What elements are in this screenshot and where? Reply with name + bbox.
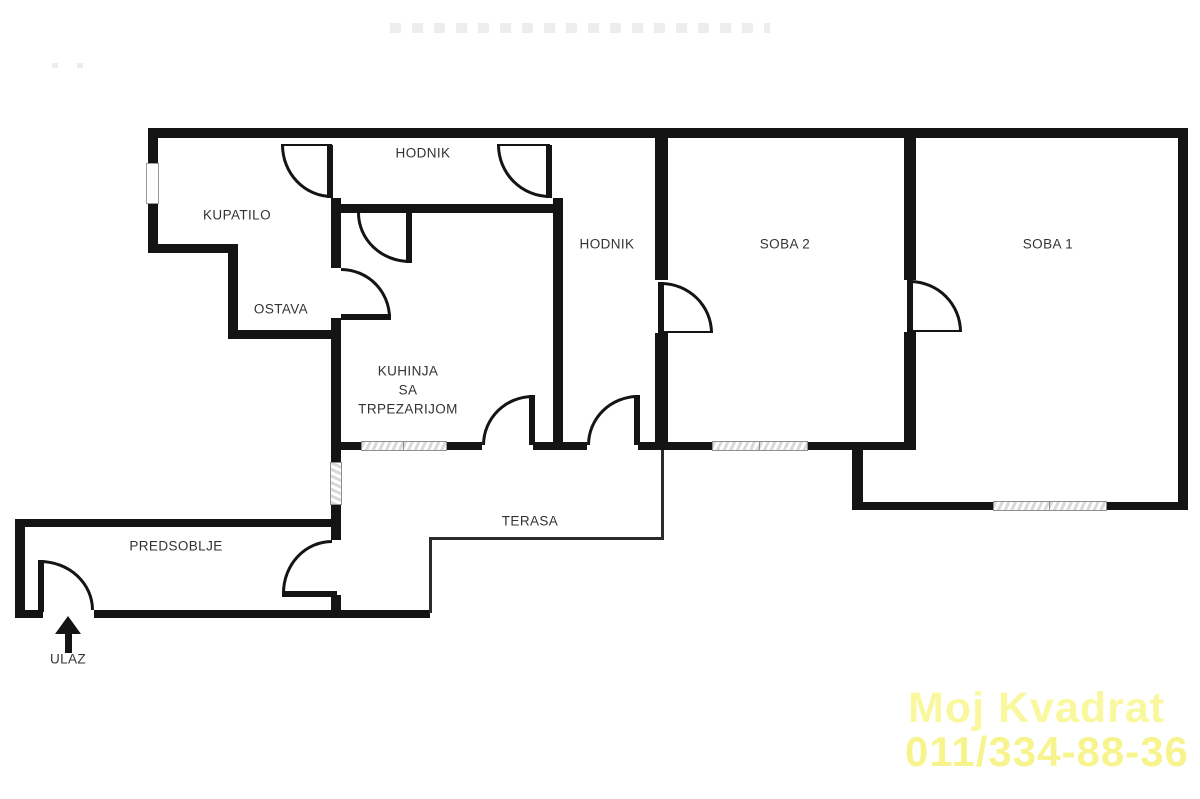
room-label-kuhinja-line1: KUHINJA <box>378 364 439 379</box>
door-leaf-soba1 <box>907 280 913 332</box>
wall-bottom-band-seg4 <box>638 442 712 450</box>
door-leaf-kuhinja-bottom <box>529 395 535 445</box>
wall-central-seg2 <box>331 318 341 462</box>
room-label-predsoblje: PREDSOBLJE <box>129 539 222 554</box>
room-label-hodnik: HODNIK <box>580 237 635 252</box>
door-edge-kupatilo <box>281 144 332 146</box>
room-label-soba1: SOBA 1 <box>1023 237 1073 252</box>
window-soba2-left <box>712 441 760 451</box>
room-label-kuhinja-line3: TRPEZARIJOM <box>358 402 458 417</box>
door-arc-soba2 <box>661 282 713 333</box>
watermark-brand: Moj Kvadrat <box>908 687 1165 730</box>
wall-kupatilo-left-upper <box>148 128 158 163</box>
window-kuhinja-right <box>403 441 447 451</box>
wall-soba2-soba1-upper <box>904 137 916 280</box>
door-leaf-predsoblje-right <box>282 591 337 597</box>
room-label-hodnik-upper: HODNIK <box>396 146 451 161</box>
window-soba1-right <box>1049 501 1107 511</box>
wall-kuhinja-hodnik-divider <box>553 198 563 450</box>
entrance-label: ULAZ <box>50 652 86 667</box>
window-terasa <box>330 462 342 505</box>
door-leaf-hodnik-bottom <box>634 395 640 445</box>
speck <box>52 63 58 68</box>
door-arc-kupatilo <box>281 145 332 198</box>
door-leaf-kupatilo <box>327 145 333 198</box>
door-arc-ostava <box>341 268 391 318</box>
door-leaf-soba2 <box>658 282 664 333</box>
wall-kupatilo-bottom <box>148 244 238 253</box>
speck <box>77 63 83 68</box>
room-label-kuhinja-line2: SA <box>399 383 418 398</box>
door-arc-predsoblje-right <box>282 540 332 593</box>
door-arc-hodnik-upper <box>497 145 550 198</box>
room-label-terasa: TERASA <box>502 514 558 529</box>
door-arc-entrance <box>40 560 94 610</box>
entrance-arrow-shaft <box>65 632 72 653</box>
window-soba1-left <box>993 501 1050 511</box>
door-edge-soba2 <box>661 331 713 333</box>
terasa-outline-left-step <box>429 537 432 613</box>
terasa-outline-bottom <box>429 537 664 540</box>
door-arc-hodnik-bottom <box>587 395 638 445</box>
door-edge-soba1 <box>910 330 962 332</box>
wall-predsoblje-top <box>15 519 341 527</box>
wall-bottom-band-seg1 <box>331 442 361 450</box>
door-leaf-hodnik-upper <box>546 145 552 198</box>
door-arc-kuhinja-top <box>357 213 410 263</box>
door-leaf-ostava <box>341 314 391 320</box>
window-kupatilo <box>146 163 159 204</box>
wall-hodnik-soba2-upper <box>655 137 668 280</box>
dashed-top-line <box>390 23 770 33</box>
wall-ostava-bottom <box>228 330 341 339</box>
wall-hodnik-soba2-lower <box>655 333 668 450</box>
room-label-kuhinja: KUHINJA SA TRPEZARIJOM <box>358 362 458 419</box>
wall-bottom-band-seg3 <box>533 442 587 450</box>
window-soba2-right <box>759 441 808 451</box>
wall-predsoblje-bottom-right <box>94 610 430 618</box>
terasa-outline-right <box>661 450 664 539</box>
wall-right-outer <box>1178 128 1188 510</box>
wall-predsoblje-left <box>15 519 25 618</box>
floor-plan: KUPATILO HODNIK OSTAVA KUHINJA SA TRPEZA… <box>0 0 1200 799</box>
wall-bottom-band-seg2 <box>447 442 482 450</box>
door-leaf-kuhinja-top <box>406 213 412 263</box>
room-label-soba2: SOBA 2 <box>760 237 810 252</box>
wall-ostava-left <box>228 244 238 338</box>
wall-step <box>852 442 863 510</box>
window-kuhinja-left <box>361 441 404 451</box>
room-label-kupatilo: KUPATILO <box>203 208 271 223</box>
wall-soba2-soba1-lower <box>904 332 916 450</box>
wall-hodnik-kuhinja <box>331 204 563 213</box>
door-edge-hodnik-upper <box>497 144 550 146</box>
wall-soba1-bottom-right <box>1107 502 1188 510</box>
wall-top-outer <box>148 128 1188 138</box>
door-arc-kuhinja-bottom <box>482 395 533 445</box>
room-label-ostava: OSTAVA <box>254 302 308 317</box>
door-arc-soba1 <box>910 280 962 332</box>
door-leaf-entrance <box>38 560 44 612</box>
wall-soba1-bottom-left <box>852 502 993 510</box>
watermark-phone: 011/334-88-36 <box>905 731 1189 773</box>
